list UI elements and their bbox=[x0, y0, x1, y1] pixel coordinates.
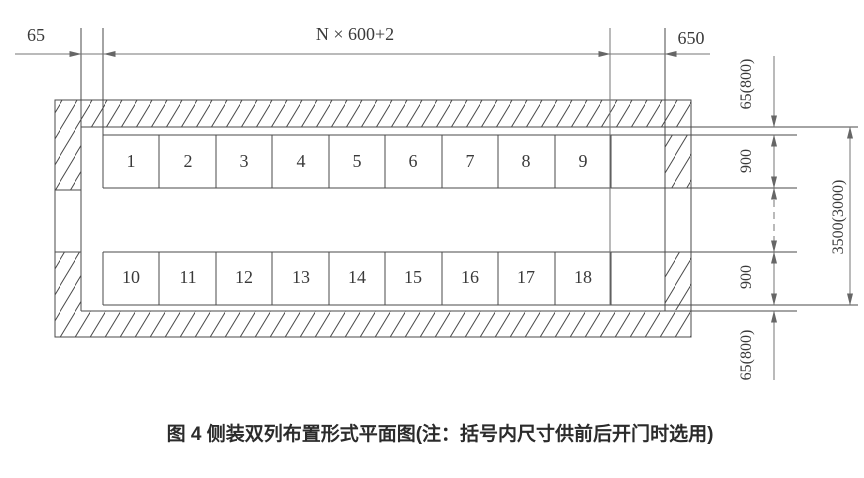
figure-page: 65 N × 600+2 650 65(800) 900 900 65(800)… bbox=[0, 0, 864, 473]
dim-bottom-clearance-label: 65(800) bbox=[738, 330, 755, 381]
cell-11-label: 11 bbox=[179, 267, 196, 287]
cell-1-label: 1 bbox=[127, 151, 136, 171]
dim-total-depth-label: 3500(3000) bbox=[830, 180, 847, 255]
cell-4-label: 4 bbox=[297, 151, 306, 171]
cell-9-label: 9 bbox=[579, 151, 588, 171]
dim-left-clearance-label: 65 bbox=[27, 25, 45, 45]
cell-10-label: 10 bbox=[122, 267, 140, 287]
dim-end-clearance-label: 650 bbox=[678, 28, 705, 48]
cell-2-label: 2 bbox=[184, 151, 193, 171]
cell-17-label: 17 bbox=[517, 267, 535, 287]
left-wall-upper bbox=[55, 127, 81, 190]
wall-hatching bbox=[55, 100, 691, 337]
plan-drawing: 65 N × 600+2 650 65(800) 900 900 65(800)… bbox=[0, 0, 864, 473]
left-wall-lower bbox=[55, 252, 81, 311]
cell-6-label: 6 bbox=[409, 151, 418, 171]
cell-16-label: 16 bbox=[461, 267, 479, 287]
room-outer-outline bbox=[55, 100, 691, 337]
cell-14-label: 14 bbox=[348, 267, 366, 287]
dim-row-width-label: N × 600+2 bbox=[316, 24, 394, 44]
top-wall bbox=[55, 100, 691, 127]
cell-15-label: 15 bbox=[404, 267, 422, 287]
cell-18-label: 18 bbox=[574, 267, 592, 287]
cell-7-label: 7 bbox=[466, 151, 475, 171]
cell-5-label: 5 bbox=[353, 151, 362, 171]
cabinet-row-2-numbers: 10 11 12 13 14 15 16 17 18 bbox=[122, 267, 592, 287]
cell-8-label: 8 bbox=[522, 151, 531, 171]
cell-13-label: 13 bbox=[292, 267, 310, 287]
cell-12-label: 12 bbox=[235, 267, 253, 287]
right-wall-upper bbox=[665, 135, 691, 188]
dim-row1-depth-label: 900 bbox=[738, 149, 755, 173]
bottom-wall bbox=[55, 311, 691, 337]
right-wall-lower bbox=[665, 252, 691, 310]
dim-row2-depth-label: 900 bbox=[738, 265, 755, 289]
dim-top-clearance-label: 65(800) bbox=[738, 59, 755, 110]
figure-caption: 图 4 侧装双列布置形式平面图(注：括号内尺寸供前后开门时选用) bbox=[167, 422, 714, 445]
cabinet-row-1-numbers: 1 2 3 4 5 6 7 8 9 bbox=[127, 151, 588, 171]
cell-3-label: 3 bbox=[240, 151, 249, 171]
